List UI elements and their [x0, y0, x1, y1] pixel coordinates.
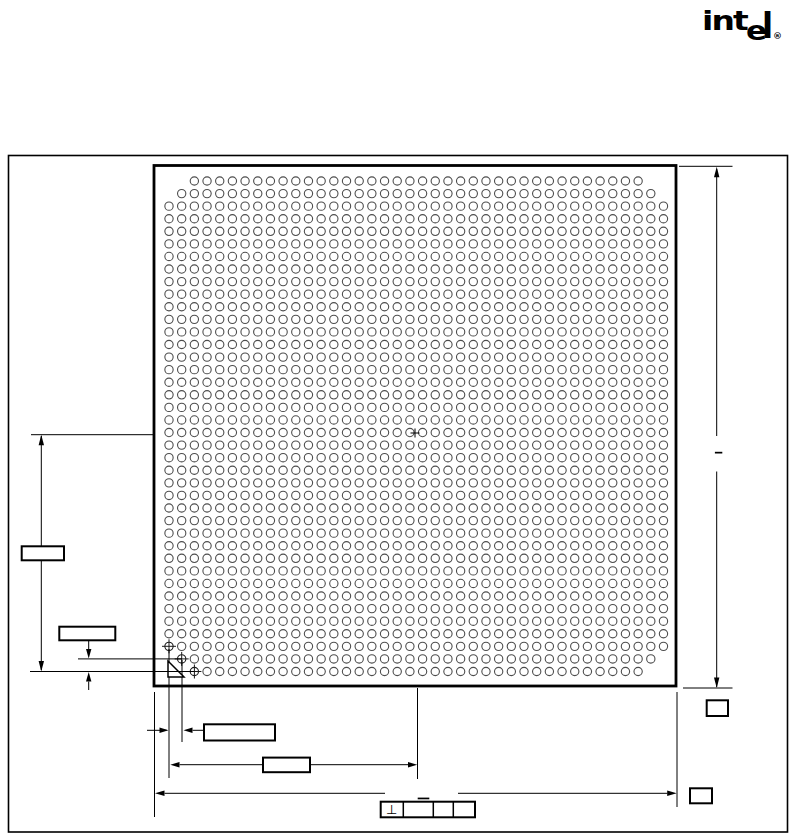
- dimension-overall-height: [679, 166, 733, 716]
- dimension-overall-width: [155, 791, 677, 800]
- arrowhead-up: [86, 672, 91, 681]
- perpendicularity-icon: ⊥: [386, 802, 397, 817]
- dimension-value-dash: [715, 452, 722, 454]
- dimension-ball-row-offset: [59, 627, 115, 690]
- arrowhead-right: [667, 791, 677, 796]
- arrowhead-down: [39, 661, 44, 672]
- logo-text-int: int: [702, 7, 747, 34]
- datasheet-page: int e l ®: [0, 0, 793, 839]
- arrowhead-right: [160, 728, 169, 733]
- package-outline: [154, 166, 676, 687]
- arrowhead-down: [714, 678, 719, 688]
- dimension-value-dash: [418, 798, 430, 800]
- intel-logo: int e l ®: [700, 6, 790, 48]
- dimension-edge-to-center: [170, 758, 417, 773]
- registered-trademark-symbol: ®: [773, 32, 782, 41]
- arrowhead-left: [170, 762, 179, 767]
- dimension-ball-pitch: [147, 724, 275, 740]
- callout-box-edge-to-center: [263, 758, 310, 773]
- arrowhead-down: [86, 649, 91, 658]
- arrowhead-left: [184, 728, 193, 733]
- callout-box-left-center-to-ball-row: [22, 546, 64, 560]
- logo-text-l: l: [762, 7, 773, 43]
- callout-box-ball-pitch: [204, 724, 275, 740]
- callout-box-overall-height: [707, 700, 728, 716]
- arrowhead-up: [39, 435, 44, 446]
- arrowhead-left: [155, 791, 165, 796]
- package-drawing: ⊥: [0, 0, 793, 839]
- arrowhead-right: [408, 762, 417, 767]
- callout-box-left-ball-row-offset: [59, 627, 115, 641]
- callout-box-corner-ref: [690, 788, 712, 803]
- arrowhead-up: [714, 167, 719, 177]
- gdt-feature-control-frame: ⊥: [381, 802, 475, 818]
